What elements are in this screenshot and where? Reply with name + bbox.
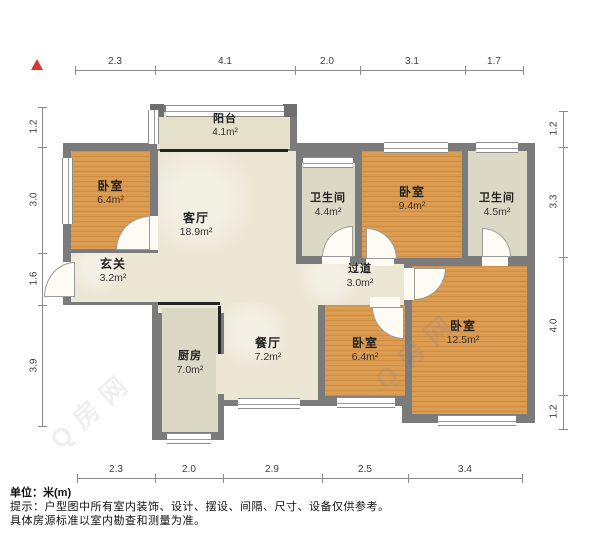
room-area: 4.1m² (212, 127, 238, 139)
room-area: 18.9m² (180, 226, 213, 238)
dim-label: 1.2 (549, 114, 560, 144)
dim-top: 2.3 4.1 2.0 3.1 1.7 (75, 70, 524, 71)
room-name: 厨房 (178, 350, 202, 363)
room-name: 过道 (348, 263, 372, 276)
room-name: 阳台 (213, 113, 237, 126)
room-area: 3.2m² (100, 272, 127, 284)
bedroom-mid-door-gap (370, 297, 400, 307)
room-name: 卫生间 (310, 192, 346, 205)
wall-pillar (283, 104, 297, 117)
room-bath-b: 卫生间 4.5m² (467, 192, 527, 218)
dim-label: 2.3 (96, 464, 136, 475)
dim-left: 1.2 3.0 1.6 3.9 (42, 107, 43, 427)
room-area: 6.4m² (97, 194, 124, 206)
dim-label: 3.1 (392, 56, 432, 67)
footer-tip-1: 提示：户型图中所有室内装饰、设计、摆设、间隔、尺寸、设备仅供参考。 (10, 500, 590, 514)
dim-label: 1.2 (549, 397, 560, 427)
bath-b-window (476, 142, 518, 153)
dim-label: 2.9 (252, 464, 292, 475)
dim-label: 3.4 (445, 464, 485, 475)
room-area: 4.5m² (484, 206, 511, 218)
bedroom-top-window (384, 142, 448, 153)
room-balcony: 阳台 4.1m² (165, 113, 285, 139)
dim-label: 3.3 (549, 187, 560, 217)
room-name: 餐厅 (255, 337, 281, 350)
dim-label: 4.0 (549, 311, 560, 341)
dim-label: 3.0 (29, 185, 40, 215)
entry-door-arc (44, 262, 75, 297)
dim-bottom: 2.3 2.0 2.9 2.5 3.4 (77, 478, 523, 479)
dim-label: 1.6 (29, 264, 40, 294)
dim-label: 1.7 (474, 56, 514, 67)
room-area: 7.2m² (255, 351, 282, 363)
dim-label: 2.0 (307, 56, 347, 67)
kitchen-window (167, 433, 211, 444)
bedroom-br-door-gap (404, 268, 414, 300)
room-living: 客厅 18.9m² (156, 212, 236, 238)
room-area: 9.4m² (399, 200, 426, 212)
kitchen-side-wall (218, 306, 221, 354)
room-name: 卧室 (399, 186, 425, 199)
footer-tip-2: 具体房源标准以室内勘查和测量为准。 (10, 514, 590, 528)
room-name: 卧室 (97, 180, 123, 193)
dim-label: 2.3 (95, 56, 135, 67)
room-bedroom-top: 卧室 9.4m² (372, 186, 452, 212)
watermark: Q房网 (41, 361, 142, 457)
dim-right: 1.2 3.3 4.0 1.2 (563, 111, 564, 430)
dining-window (238, 398, 300, 409)
room-name: 卫生间 (479, 192, 515, 205)
dim-label: 2.0 (169, 464, 209, 475)
room-entry: 玄关 3.2m² (80, 258, 146, 284)
balcony-side-window (148, 110, 159, 144)
floorplan-canvas: 2.3 4.1 2.0 3.1 1.7 2.3 2.0 2.9 2.5 3.4 … (0, 0, 600, 548)
room-name: 客厅 (183, 212, 209, 225)
room-kitchen: 厨房 7.0m² (160, 350, 220, 376)
room-hallway: 过道 3.0m² (330, 263, 390, 289)
dim-label: 2.5 (345, 464, 385, 475)
bedroom-mid-window (337, 397, 395, 408)
room-bedroom-tl: 卧室 6.4m² (71, 180, 150, 206)
bath-a-window (303, 157, 353, 168)
room-area: 7.0m² (177, 364, 204, 376)
room-name: 卧室 (352, 337, 378, 350)
room-area: 4.4m² (315, 206, 342, 218)
dim-label: 1.2 (29, 112, 40, 142)
footer-notes: 单位：米(m) 提示：户型图中所有室内装饰、设计、摆设、间隔、尺寸、设备仅供参考… (10, 486, 590, 528)
room-dining: 餐厅 7.2m² (238, 337, 298, 363)
room-area: 3.0m² (347, 277, 374, 289)
kitchen-top-wall (158, 302, 220, 305)
bedroom-br-window (438, 415, 516, 426)
footer-unit: 单位：米(m) (10, 486, 590, 500)
room-name: 玄关 (100, 258, 126, 271)
room-bath-a: 卫生间 4.4m² (298, 192, 358, 218)
dim-label: 4.1 (205, 56, 245, 67)
north-arrow-icon (31, 59, 43, 70)
dim-label: 3.9 (29, 351, 40, 381)
balcony-sliding-door (160, 149, 288, 152)
